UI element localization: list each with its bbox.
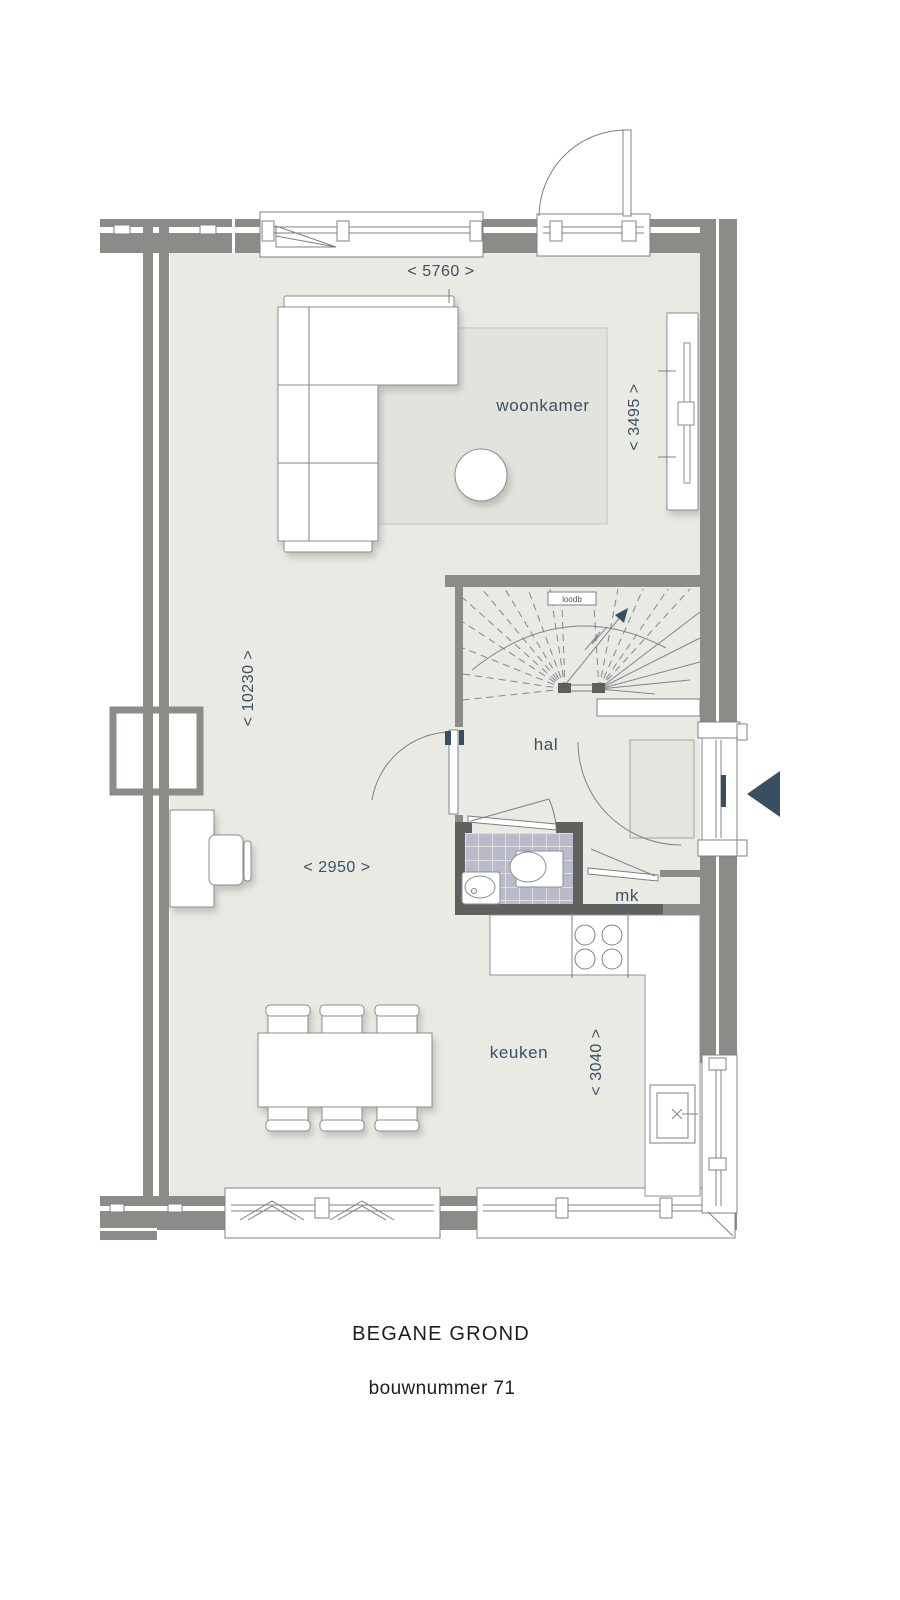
terrace-door xyxy=(537,130,650,256)
doormat xyxy=(630,740,694,838)
entrance-arrow-icon xyxy=(747,771,780,817)
dining-table xyxy=(258,1033,432,1107)
dining-window-bottom xyxy=(225,1188,440,1238)
unit-title: bouwnummer 71 xyxy=(369,1378,516,1399)
dining-set xyxy=(258,1005,432,1131)
left-wall-niche xyxy=(113,710,200,792)
stair-note-label: loodb xyxy=(562,595,582,604)
tv-cabinet xyxy=(667,313,698,510)
room-label-living: woonkamer xyxy=(495,396,589,415)
side-table xyxy=(455,449,507,501)
hand-basin xyxy=(462,872,500,904)
room-label-kitchen: keuken xyxy=(490,1043,548,1062)
living-room-window-top xyxy=(260,212,483,257)
room-label-hall: hal xyxy=(534,735,559,754)
dim-house-length: < 10230 > xyxy=(240,650,257,727)
room-label-meter-cupboard: mk xyxy=(615,886,639,905)
dim-living-width: < 5760 > xyxy=(407,263,474,280)
floor-title: BEGANE GROND xyxy=(352,1323,530,1345)
dim-kitchen-depth: < 3040 > xyxy=(588,1028,605,1095)
floorplan-canvas: loodb xyxy=(0,0,900,1600)
dim-living-depth: < 3495 > xyxy=(626,383,643,450)
dim-living-mid-width: < 2950 > xyxy=(303,859,370,876)
front-door-handle xyxy=(721,775,726,807)
toilet-fixture xyxy=(510,851,563,887)
